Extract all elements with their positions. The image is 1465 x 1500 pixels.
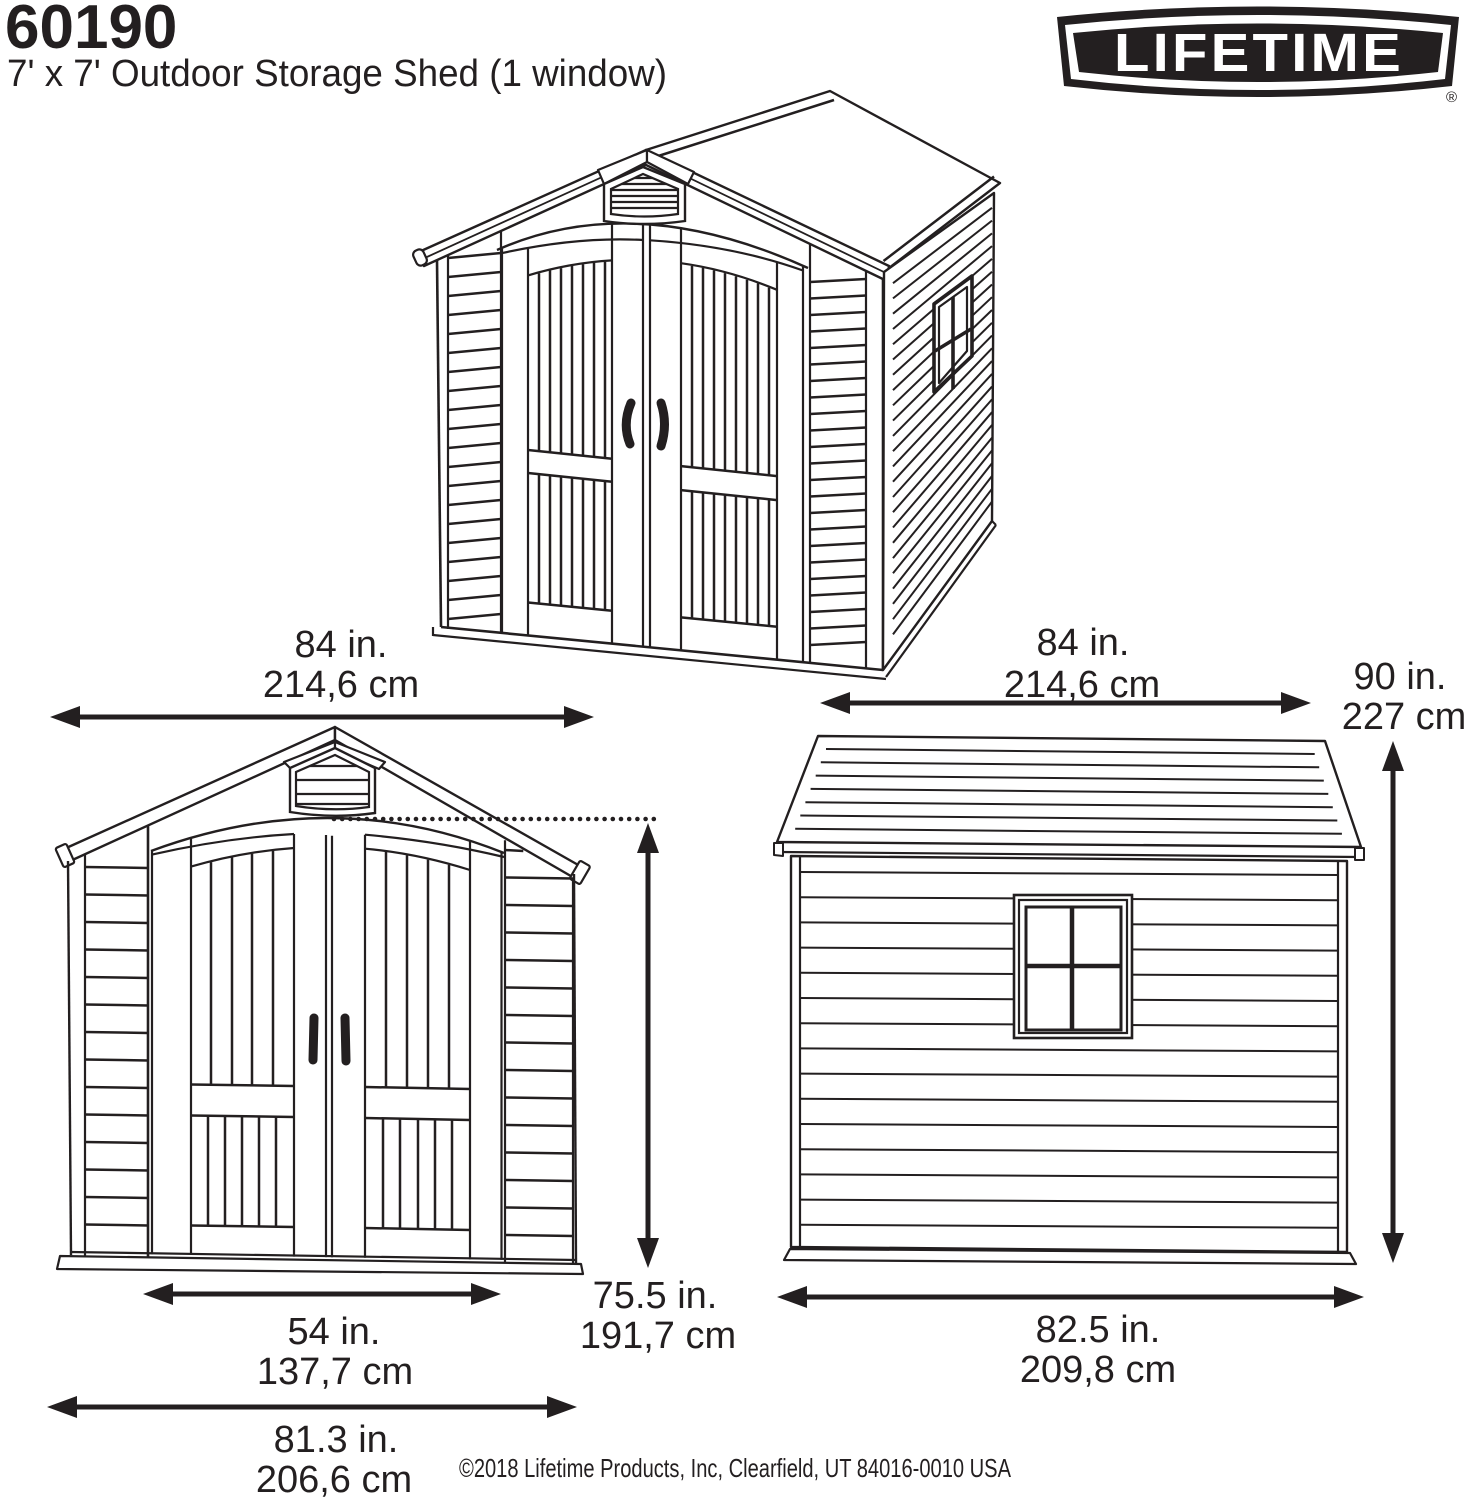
svg-text:54 in.: 54 in. bbox=[288, 1311, 381, 1353]
svg-text:LIFETIME: LIFETIME bbox=[1114, 23, 1404, 83]
svg-text:90 in.: 90 in. bbox=[1354, 656, 1447, 698]
svg-text:209,8 cm: 209,8 cm bbox=[1020, 1349, 1176, 1391]
svg-text:®: ® bbox=[1446, 89, 1457, 106]
svg-text:206,6 cm: 206,6 cm bbox=[256, 1459, 412, 1500]
svg-text:84 in.: 84 in. bbox=[295, 624, 388, 666]
svg-text:81.3 in.: 81.3 in. bbox=[274, 1419, 399, 1461]
svg-text:7' x 7' Outdoor Storage Shed (: 7' x 7' Outdoor Storage Shed (1 window) bbox=[7, 53, 667, 95]
svg-text:191,7 cm: 191,7 cm bbox=[580, 1315, 736, 1357]
svg-text:227 cm: 227 cm bbox=[1342, 696, 1465, 738]
svg-text:214,6 cm: 214,6 cm bbox=[263, 664, 419, 706]
svg-text:84 in.: 84 in. bbox=[1037, 622, 1130, 664]
svg-text:137,7 cm: 137,7 cm bbox=[257, 1351, 413, 1393]
svg-text:82.5 in.: 82.5 in. bbox=[1036, 1309, 1161, 1351]
svg-text:©2018 Lifetime Products, Inc,: ©2018 Lifetime Products, Inc, Clearfield… bbox=[459, 1453, 1011, 1483]
svg-text:214,6 cm: 214,6 cm bbox=[1004, 664, 1160, 706]
svg-text:75.5 in.: 75.5 in. bbox=[593, 1275, 718, 1317]
